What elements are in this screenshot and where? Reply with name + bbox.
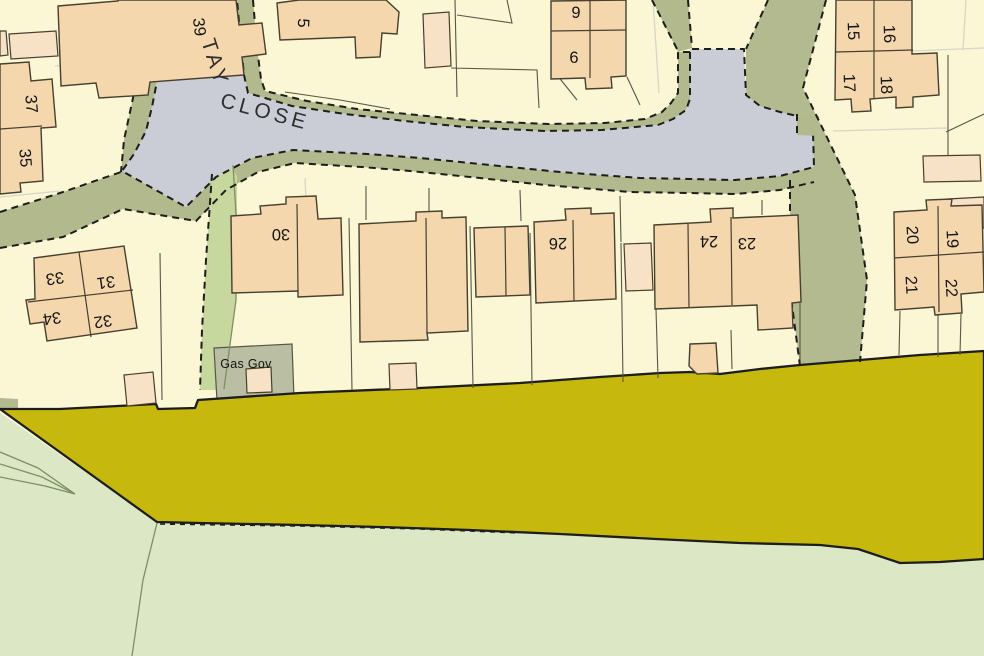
house-number-34: 34 [42,308,63,328]
garage-39b [0,31,8,56]
map-canvas: TAY CLOSE Gas Gov 39 37 35 5 9 6 15 16 1… [0,0,984,656]
building-26 [534,208,616,303]
house-number-22: 22 [942,278,961,297]
garage-39a [9,31,58,59]
house-number-39: 39 [189,17,209,37]
house-number-33: 33 [45,268,66,288]
house-number-32: 32 [93,311,114,331]
building-bar-east [923,155,981,182]
house-number-5: 5 [294,18,312,28]
house-number-17: 17 [840,74,859,93]
khaki-corner-west [0,398,18,409]
house-number-23: 23 [738,234,756,252]
house-number-31: 31 [96,272,117,292]
outbuilding-623 [624,243,653,291]
verge-notch [797,114,819,136]
house-number-18: 18 [877,76,896,95]
house-number-21: 21 [902,275,921,294]
building-small-pair [474,226,530,297]
house-number-16: 16 [880,25,899,44]
porch-mid [389,363,417,390]
gas-governor-label: Gas Gov [220,357,272,371]
house-number-20: 20 [903,225,922,244]
building-mid-pair [359,211,468,342]
house-number-37: 37 [21,94,41,114]
house-number-9: 9 [571,4,580,22]
building-9-6 [551,0,626,89]
house-number-35: 35 [15,148,35,168]
house-number-26: 26 [549,234,567,252]
house-number-15: 15 [844,22,863,41]
house-number-24: 24 [700,232,718,250]
outbuilding-pentagon [689,343,718,374]
house-number-19: 19 [943,229,962,248]
house-number-30: 30 [272,225,290,243]
planning-map: TAY CLOSE Gas Gov 39 37 35 5 9 6 15 16 1… [0,0,984,656]
outbuilding-near-5 [423,12,451,68]
house-number-6: 6 [569,49,578,67]
garage-south-west [124,372,156,406]
